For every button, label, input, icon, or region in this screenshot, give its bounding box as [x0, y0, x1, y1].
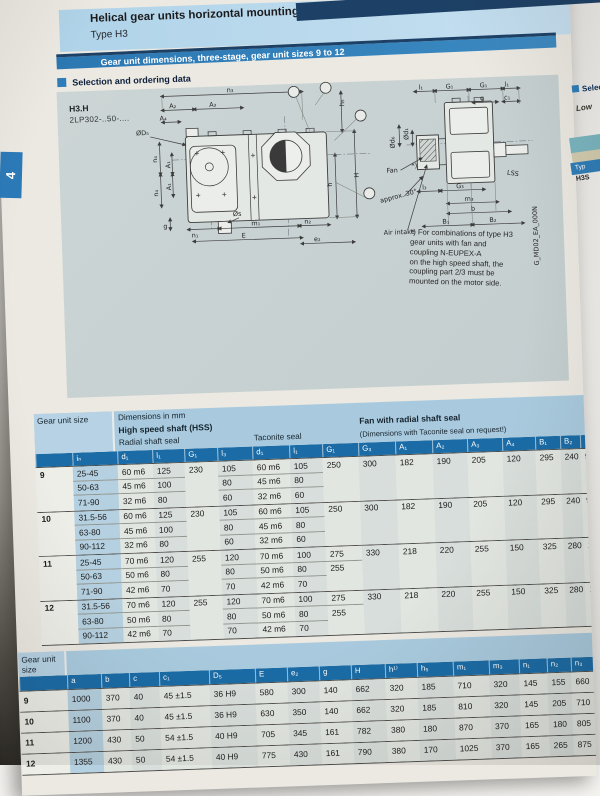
t2-cell: 350	[288, 702, 321, 723]
t2-cell: 36 H9	[209, 684, 256, 706]
t1-cell: 60 m6	[253, 459, 290, 475]
t1-cell	[361, 515, 398, 531]
t2-cell: 50	[131, 729, 162, 750]
t1-cell	[540, 568, 565, 583]
t1-cell: 120	[156, 552, 188, 568]
t2-cell: 380	[387, 741, 420, 762]
t1-cell: 100	[153, 477, 185, 493]
dim-label: h	[326, 182, 334, 186]
t1-cell: 32 m6	[120, 537, 155, 553]
t1-cell: 255	[472, 585, 507, 601]
t1-cell: 100	[155, 522, 187, 538]
t1-cell	[435, 526, 470, 542]
t1-cell	[190, 624, 223, 640]
dim-label: m₃	[464, 195, 474, 203]
t1-cell	[41, 615, 78, 631]
t2-cell: 790	[354, 742, 389, 763]
dim-label: n₄	[152, 189, 160, 196]
column-header: B₁	[535, 436, 560, 450]
t1-cell: 50-63	[76, 569, 121, 585]
t1-cell	[323, 471, 359, 487]
column-header: h¹⁾	[385, 663, 417, 678]
t1-cell	[438, 615, 473, 631]
column-header: A₁	[395, 440, 432, 454]
dim-label: B₁	[442, 218, 450, 226]
t1-cell: 80	[293, 562, 326, 578]
t2-cell: 430	[290, 744, 323, 765]
t1-cell	[437, 571, 472, 587]
t1-cell: 45 m6	[255, 518, 292, 534]
t1-cell: 275	[327, 590, 363, 606]
t1-cell: 220	[436, 542, 471, 558]
t1-cell: 70	[157, 581, 189, 597]
t1-cell: 255	[188, 551, 221, 567]
t1-cell: 32 m6	[254, 488, 291, 504]
t1-cell: 300	[360, 500, 397, 516]
t1-cell	[38, 540, 75, 556]
t1-cell: 60 m6	[119, 509, 154, 525]
t1-cell: 50 m6	[258, 607, 295, 623]
t2-cell: 1025	[455, 738, 492, 759]
t1-cell: 50 m6	[121, 567, 156, 583]
t2-cell: 1000	[67, 689, 102, 710]
t1-cell	[508, 599, 541, 615]
t1-cell	[566, 611, 586, 626]
t1-cell: 50 m6	[123, 612, 158, 628]
t1-cell: 120	[504, 495, 537, 511]
t1-cell: 60 m6	[254, 504, 291, 520]
t1-cell	[561, 478, 581, 493]
t2-cell: 320	[385, 678, 418, 699]
t1-cell: 70 m6	[122, 597, 157, 613]
t1-cell: 255	[471, 541, 506, 557]
column-header: n₃	[571, 657, 595, 672]
t1-cell: 100	[294, 592, 327, 608]
t1-cell	[188, 565, 221, 581]
dim-label: n₃	[226, 86, 233, 94]
t1-cell	[435, 512, 470, 528]
column-header	[19, 675, 67, 691]
t1-cell	[538, 523, 563, 538]
t1-cell	[362, 559, 399, 575]
t2-cell: 265	[549, 736, 574, 757]
t1-cell	[503, 465, 536, 481]
t1-cell: 80	[154, 492, 186, 508]
t2-cell: 205	[548, 694, 573, 715]
dim-label: A₁	[164, 161, 172, 169]
t2-cell: 10	[20, 711, 69, 733]
t1-cell: 32 m6	[119, 493, 154, 509]
t1-cell: 105	[291, 503, 324, 519]
t2-cell: 54 ±1.5	[161, 727, 212, 749]
dim-label: b	[471, 205, 475, 213]
footnote-text: *) For combinations of type H3gear units…	[409, 227, 562, 290]
t1-cell	[508, 613, 541, 629]
table1-corner-header: Gear unit size	[34, 411, 115, 454]
dim-label: G₃	[456, 182, 464, 190]
dim-label: ØD₅	[136, 129, 149, 137]
t1-cell: 45 m6	[118, 479, 153, 495]
t1-cell: 90-112	[78, 628, 123, 644]
column-header: A₂	[432, 439, 467, 453]
dim-label: E	[242, 232, 246, 240]
t2-cell: 185	[418, 698, 455, 719]
t1-cell	[563, 523, 583, 538]
t1-cell: 70 m6	[257, 593, 294, 609]
t1-cell: 205	[467, 452, 502, 468]
column-header: c	[129, 672, 159, 687]
page-subtitle: Type H3	[90, 29, 128, 41]
t1-cell	[433, 482, 468, 498]
column-header: d₁	[117, 450, 152, 464]
dim-label: Ød₆	[388, 136, 396, 149]
t2-cell: 140	[320, 701, 353, 722]
t1-cell: 80	[292, 517, 325, 533]
t1-cell: 230	[186, 506, 219, 522]
t1-cell: 105	[290, 458, 323, 474]
t2-cell: 775	[258, 745, 291, 766]
t1-cell	[506, 554, 539, 570]
t1-cell: 71-90	[77, 583, 122, 599]
t2-cell: 1200	[69, 731, 104, 752]
t1-cell: 120	[222, 594, 257, 610]
t1-cell: 295	[537, 494, 562, 509]
t1-cell: 80	[295, 606, 328, 622]
t2-cell: 140	[319, 680, 352, 701]
dim-label: *)	[411, 162, 417, 170]
dim-label: approx. 30°	[379, 187, 418, 205]
t2-cell: 430	[104, 751, 133, 772]
t1-cell: 70	[294, 576, 327, 592]
column-header: m₁	[453, 660, 489, 675]
t1-cell	[470, 511, 505, 527]
t1-cell: 255	[189, 595, 222, 611]
t1-cell	[38, 526, 75, 542]
column-header: a	[67, 674, 101, 689]
column-header: G₁	[184, 448, 217, 462]
t1-cell: 32 m6	[255, 533, 292, 549]
dim-label: l₁	[504, 80, 509, 88]
t1-cell: 42 m6	[258, 622, 295, 638]
t1-cell	[190, 610, 223, 626]
t2-cell: 370	[102, 709, 131, 730]
t1-cell: 280	[563, 538, 583, 553]
t2-cell: 710	[453, 675, 490, 696]
t1-cell: 9	[36, 467, 73, 483]
t1-cell: 190	[434, 498, 469, 514]
column-header: l₃	[217, 447, 252, 461]
t1-cell: 80	[290, 473, 323, 489]
t1-cell	[541, 598, 566, 613]
dim-label: n₁	[192, 231, 199, 239]
t1-cell: 42 m6	[123, 626, 158, 642]
t2-cell: 580	[255, 682, 288, 703]
dim-label: g	[480, 94, 484, 102]
t1-cell	[187, 521, 220, 537]
t1-cell	[398, 528, 435, 544]
column-header: n₂	[547, 658, 571, 673]
t1-cell	[503, 480, 536, 496]
t2-cell: 320	[489, 674, 520, 695]
t1-cell: 325	[539, 539, 564, 554]
t1-cell	[473, 600, 508, 616]
t1-cell	[504, 510, 537, 526]
dim-label: l₁	[419, 83, 424, 91]
group-hss: High speed shaft (HSS)	[118, 422, 212, 435]
dim-label: l₃	[422, 183, 427, 191]
t2-cell: 161	[322, 743, 355, 764]
t1-cell	[468, 481, 503, 497]
section-heading: Selection and ordering data	[57, 73, 191, 88]
t1-cell	[433, 468, 468, 484]
t1-cell: 60	[219, 490, 254, 506]
table-shaft-dimensions: Gear unit size Dimensions in mm High spe…	[34, 393, 597, 646]
t1-cell: 295	[535, 450, 560, 465]
t1-cell: 70	[222, 578, 257, 594]
t1-cell: 300	[359, 456, 396, 472]
t2-cell: 630	[256, 703, 289, 724]
t2-cell: 870	[455, 717, 492, 738]
t1-cell	[471, 555, 506, 571]
t1-cell: 50 m6	[256, 563, 293, 579]
t1-cell: 250	[324, 501, 360, 517]
t2-cell: 165	[521, 736, 550, 757]
group-taconite: Taconite seal	[254, 432, 302, 443]
t1-cell: 70 m6	[121, 553, 156, 569]
t1-cell	[536, 464, 561, 479]
t2-cell: 320	[386, 699, 419, 720]
t1-cell: 220	[437, 586, 472, 602]
t2-cell: 370	[101, 688, 130, 709]
dim-label: H	[353, 173, 361, 178]
t1-cell: 60	[291, 487, 324, 503]
t1-cell	[438, 601, 473, 617]
column-header	[35, 453, 72, 467]
t1-cell	[537, 509, 562, 524]
t1-cell: 250	[323, 457, 359, 473]
t2-cell: 45 ±1.5	[159, 685, 210, 707]
t2-cell: 662	[352, 700, 387, 721]
t1-cell	[324, 486, 360, 502]
t1-cell: 42 m6	[257, 577, 294, 593]
group-fan: Fan with radial shaft seal	[359, 412, 460, 426]
t1-cell: 325	[540, 583, 565, 598]
t1-cell: 60	[292, 532, 325, 548]
t1-cell: 10	[37, 511, 74, 527]
blue-square-icon	[57, 78, 66, 87]
t1-cell	[507, 569, 540, 585]
t1-cell: 182	[395, 454, 432, 470]
t1-cell: 120	[221, 549, 256, 565]
t1-cell: 190	[432, 453, 467, 469]
t1-cell: 218	[400, 588, 437, 604]
t2-cell: 54 ±1.5	[162, 748, 213, 770]
t1-cell	[541, 612, 566, 627]
t1-cell	[400, 572, 437, 588]
t2-cell: 1355	[70, 752, 105, 773]
t1-cell: 42 m6	[122, 582, 157, 598]
t1-cell: 80	[218, 475, 253, 491]
dim-label: m₁	[251, 219, 261, 227]
t2-cell: 320	[490, 695, 521, 716]
t2-cell: 662	[351, 679, 386, 700]
t1-cell: 218	[399, 543, 436, 559]
t1-cell: 80	[221, 564, 256, 580]
t1-cell	[39, 570, 76, 586]
t1-cell: 71-90	[74, 494, 119, 510]
t1-cell: 205	[469, 496, 504, 512]
dim-label: A₃	[209, 101, 217, 109]
t1-cell: 25-45	[76, 554, 121, 570]
dim-label: c₁	[504, 93, 511, 101]
dim-label: e₂	[314, 235, 321, 243]
column-header: d₁	[252, 445, 289, 459]
t2-cell: 170	[419, 740, 456, 761]
t1-cell: 125	[154, 507, 186, 523]
dim-label: G₁	[479, 81, 487, 89]
t1-cell: 80	[155, 536, 187, 552]
blue-square-icon	[572, 85, 580, 93]
column-header: A₃	[467, 438, 502, 452]
t2-cell: 36 H9	[210, 705, 257, 727]
dim-label: G₁	[446, 82, 454, 90]
t2-cell: 370	[491, 737, 522, 758]
t2-cell: 345	[289, 723, 322, 744]
t1-cell: 125	[153, 463, 185, 479]
t1-cell	[539, 553, 564, 568]
table2-corner-header: Gear unit size	[18, 651, 67, 677]
t2-cell: 40	[130, 708, 161, 729]
t1-cell: 80	[158, 611, 190, 627]
t1-cell: 45 m6	[120, 523, 155, 539]
t1-cell	[561, 464, 581, 479]
t2-cell: 430	[103, 730, 132, 751]
t1-cell	[361, 529, 398, 545]
table1-body: 925-4560 m612523010560 m6105250300182190…	[36, 446, 597, 646]
column-header: m₃	[489, 659, 519, 674]
t1-cell: 150	[507, 584, 540, 600]
dim-label: g	[163, 222, 167, 230]
t1-cell	[364, 618, 401, 634]
column-header: b	[101, 673, 129, 688]
group-radial: Radial shaft seal	[119, 436, 180, 447]
t1-cell	[401, 602, 438, 618]
t1-cell	[399, 558, 436, 574]
t1-cell: 70	[295, 621, 328, 637]
t1-cell: 70 m6	[256, 548, 293, 564]
t2-cell: 810	[454, 696, 491, 717]
t1-cell: 60	[220, 534, 255, 550]
t1-cell	[37, 496, 74, 512]
t1-cell	[328, 619, 364, 635]
column-header: n₁	[519, 658, 547, 673]
t2-cell: 45 ±1.5	[160, 706, 211, 728]
t2-cell: 875	[573, 735, 596, 756]
t1-cell	[470, 525, 505, 541]
t1-cell	[473, 614, 508, 630]
t1-cell	[359, 470, 396, 486]
column-header: l₁	[152, 449, 184, 463]
t2-cell: 40	[129, 687, 160, 708]
t2-cell: 161	[321, 722, 354, 743]
dims-note: Dimensions in mm	[118, 411, 186, 422]
t1-cell: 330	[362, 544, 399, 560]
t1-cell: 105	[218, 461, 253, 477]
t1-cell: 80	[220, 520, 255, 536]
t1-cell: 45 m6	[253, 474, 290, 490]
t1-cell: 330	[363, 589, 400, 605]
t2-cell: 12	[22, 753, 71, 775]
t1-cell: 255	[328, 605, 364, 621]
t2-cell: 9	[20, 690, 69, 712]
t1-cell	[364, 603, 401, 619]
column-header: c₁	[159, 670, 209, 686]
column-header: h₅	[417, 662, 453, 677]
t1-cell: 70	[158, 625, 190, 641]
t1-cell	[398, 513, 435, 529]
t2-cell: 660	[571, 672, 596, 693]
column-header: G₁	[322, 443, 358, 457]
column-header: iₙ	[72, 451, 117, 466]
t1-cell	[185, 476, 218, 492]
t2-cell: 180	[419, 719, 456, 740]
t1-cell	[564, 553, 584, 568]
t1-cell: 100	[293, 547, 326, 563]
t1-cell	[40, 585, 77, 601]
column-header: g	[319, 665, 351, 680]
t1-cell: 240	[562, 494, 582, 509]
t1-cell: 90-112	[75, 539, 120, 555]
t1-cell: 31.5-56	[74, 510, 119, 526]
t2-cell: 1100	[68, 710, 103, 731]
t1-cell: 60 m6	[118, 464, 153, 480]
t1-cell: 230	[185, 462, 218, 478]
t1-cell	[360, 485, 397, 501]
t2-cell: 155	[547, 673, 572, 694]
t2-cell: 11	[21, 732, 70, 754]
chapter-tab: 4	[0, 152, 23, 199]
t1-cell	[41, 629, 78, 645]
t1-cell	[468, 466, 503, 482]
t1-cell: 255	[326, 560, 362, 576]
column-header: l₁	[289, 444, 322, 458]
t1-cell	[189, 580, 222, 596]
t1-cell	[327, 575, 363, 591]
t1-cell	[562, 508, 582, 523]
catalog-page: Helical gear units horizontal mounting p…	[0, 0, 597, 796]
t1-cell	[186, 491, 219, 507]
dim-label: B₂	[489, 216, 497, 224]
t1-cell	[325, 516, 361, 532]
t2-cell: 782	[353, 721, 388, 742]
t1-cell: 31.5-56	[77, 599, 122, 615]
t1-cell	[401, 617, 438, 633]
t1-cell: 120	[157, 596, 189, 612]
t2-cell: 300	[287, 681, 320, 702]
t1-cell: 182	[397, 499, 434, 515]
t1-cell: 11	[39, 556, 76, 572]
t2-cell: 185	[417, 677, 454, 698]
t1-cell: 12	[40, 600, 77, 616]
column-header: B₂	[560, 435, 580, 449]
t2-cell: 145	[520, 694, 549, 715]
dim-label: A₁	[165, 183, 173, 191]
t2-cell: 180	[549, 715, 574, 736]
t1-cell: 120	[502, 451, 535, 467]
t1-cell: 240	[560, 449, 580, 464]
t2-cell: 165	[521, 715, 550, 736]
t1-cell: 150	[506, 540, 539, 556]
